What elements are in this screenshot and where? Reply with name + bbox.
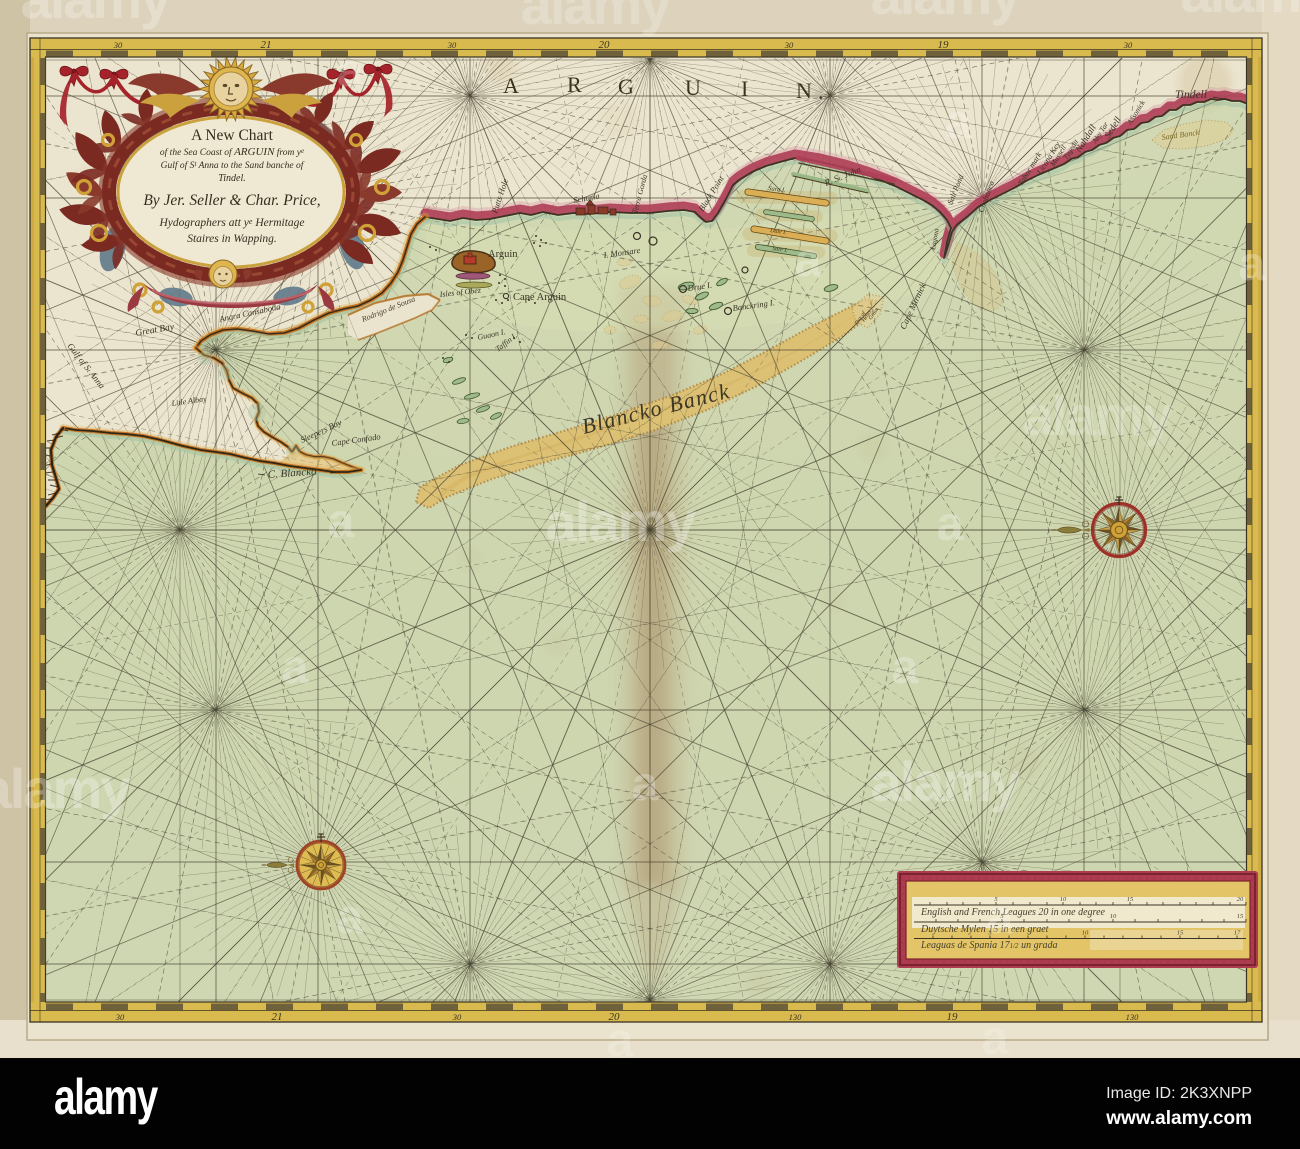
svg-text:30: 30 <box>113 40 123 50</box>
svg-text:G: G <box>618 74 634 99</box>
svg-text:www.alamy.com: www.alamy.com <box>1105 1108 1252 1129</box>
svg-text:a: a <box>987 891 1014 944</box>
svg-text:alamy: alamy <box>871 0 1022 26</box>
svg-text:alamy: alamy <box>871 750 1022 813</box>
svg-text:a: a <box>795 234 822 287</box>
svg-text:Cape Arguin: Cape Arguin <box>513 292 567 303</box>
svg-text:I: I <box>741 76 748 101</box>
svg-text:alamy: alamy <box>1181 0 1300 24</box>
svg-text:30: 30 <box>115 1012 125 1022</box>
svg-text:.: . <box>818 79 824 104</box>
svg-text:a: a <box>632 758 659 811</box>
svg-text:30: 30 <box>784 40 794 50</box>
svg-text:10: 10 <box>1110 913 1117 920</box>
svg-text:a: a <box>337 44 364 97</box>
svg-text:alamy: alamy <box>521 0 672 36</box>
svg-text:a: a <box>328 495 355 548</box>
svg-text:10: 10 <box>1060 896 1067 903</box>
svg-text:21: 21 <box>261 39 272 51</box>
svg-text:Arguin: Arguin <box>488 249 518 260</box>
svg-text:10: 10 <box>1082 930 1089 937</box>
svg-text:15: 15 <box>1127 896 1134 903</box>
svg-text:21: 21 <box>272 1011 283 1023</box>
svg-text:alamy: alamy <box>1023 384 1174 447</box>
svg-text:30: 30 <box>1123 40 1133 50</box>
svg-text:N: N <box>796 78 812 103</box>
svg-text:17: 17 <box>1234 930 1241 937</box>
svg-text:Image ID: 2K3XNPP: Image ID: 2K3XNPP <box>1106 1085 1252 1102</box>
svg-text:Tindell: Tindell <box>1175 89 1207 101</box>
svg-text:a: a <box>337 891 364 944</box>
svg-text:130: 130 <box>1126 1012 1140 1022</box>
svg-text:Staires in Wapping.: Staires in Wapping. <box>187 233 277 245</box>
svg-text:U: U <box>685 75 701 100</box>
svg-text:Tindel.: Tindel. <box>218 173 246 184</box>
svg-text:alamy: alamy <box>0 757 131 820</box>
svg-text:A New Chart: A New Chart <box>191 127 273 144</box>
svg-text:R: R <box>567 72 582 97</box>
svg-text:a: a <box>1239 238 1266 291</box>
svg-text:20: 20 <box>1237 896 1244 903</box>
svg-text:Hydographers att ye Hermitage: Hydographers att ye Hermitage <box>158 217 304 229</box>
svg-text:15: 15 <box>1177 930 1184 937</box>
svg-text:a: a <box>945 96 972 149</box>
svg-text:15: 15 <box>1237 913 1244 920</box>
svg-text:alamy: alamy <box>54 1068 158 1125</box>
svg-text:A: A <box>503 73 519 98</box>
svg-text:Duytsche Mylen 15 in een graet: Duytsche Mylen 15 in een graet <box>920 924 1049 935</box>
svg-text:Gulf of St Anna to the Sand ba: Gulf of St Anna to the Sand banche of <box>161 160 305 171</box>
svg-text:20: 20 <box>599 39 611 51</box>
svg-text:By Jer. Seller & Char. Price,: By Jer. Seller & Char. Price, <box>143 192 320 209</box>
svg-text:30: 30 <box>447 40 457 50</box>
svg-text:19: 19 <box>938 39 950 51</box>
svg-text:a: a <box>282 641 309 694</box>
svg-text:130: 130 <box>789 1012 803 1022</box>
svg-text:a: a <box>982 1012 1009 1065</box>
svg-text:alamy: alamy <box>21 0 172 30</box>
svg-text:of the Sea Coast of ARGUIN fro: of the Sea Coast of ARGUIN from ye <box>160 146 304 158</box>
svg-text:a: a <box>892 641 919 694</box>
svg-text:alamy: alamy <box>546 490 697 553</box>
svg-text:a: a <box>937 498 964 551</box>
svg-text:19: 19 <box>947 1011 959 1023</box>
svg-text:30: 30 <box>452 1012 462 1022</box>
